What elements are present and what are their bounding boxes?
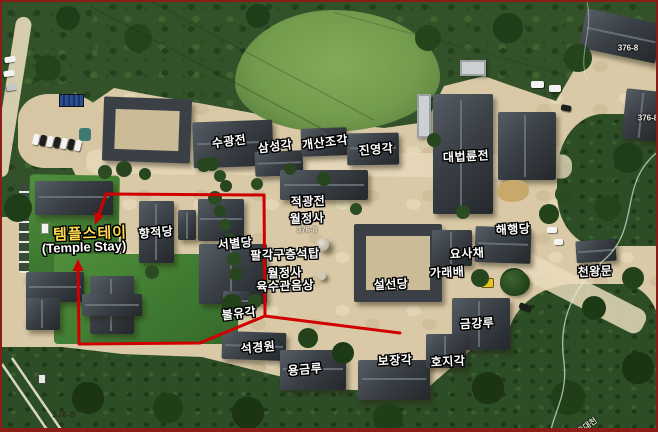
road-lines xyxy=(2,358,64,432)
boundary-line xyxy=(584,2,589,80)
label-statue-line2: 육수관음상 xyxy=(256,279,314,294)
label-seokgyeongwon: 석경원 xyxy=(240,337,276,357)
label-hyangjeokdang: 향적당 xyxy=(138,222,174,242)
label-statue-line1: 월정사 xyxy=(256,266,314,281)
label-hojigak: 호지각 xyxy=(430,352,465,371)
label-statue: 월정사 육수관음상 xyxy=(256,266,315,294)
label-pagoda: 팔각구층석탑 xyxy=(250,244,320,263)
label-jinyeonggak: 진영각 xyxy=(358,139,394,159)
label-bojanggak: 보장각 xyxy=(377,351,412,370)
label-cheonwangmun: 천왕문 xyxy=(577,262,612,281)
label-jeokgwangjeon: 적광전 xyxy=(290,192,325,210)
label-yonggeumnu: 용금루 xyxy=(287,359,323,379)
aerial-map: 수광전 삼성각 개산조각 진영각 대법륜전 적광전 월정사 376-8 향적당 … xyxy=(0,0,658,432)
label-temple-stay-english: (Temple Stay) xyxy=(42,238,127,256)
power-line xyxy=(332,12,562,74)
boundary-line xyxy=(550,150,658,432)
label-seolseondang: 설선당 xyxy=(373,275,408,294)
label-geumgangnu: 금강루 xyxy=(459,314,494,333)
power-line xyxy=(152,2,374,120)
power-line xyxy=(90,6,347,142)
line-overlay xyxy=(2,2,658,432)
label-daebeomnyunjeon: 대법륜전 xyxy=(443,146,490,165)
label-yosachae: 요사채 xyxy=(449,244,484,263)
label-parcel-center: 376-8 xyxy=(297,226,317,235)
label-woljeongsa: 월정사 xyxy=(289,209,324,227)
label-parcel-top-right-2: 376-8 xyxy=(638,114,658,123)
label-haehaengdang: 해행당 xyxy=(495,220,530,239)
label-garaebae: 가래배 xyxy=(429,263,464,282)
label-parcel-bottom-left: 376-8 xyxy=(53,411,76,420)
route-arrowhead xyxy=(73,259,84,271)
label-parcel-top-right-1: 376-8 xyxy=(618,44,638,53)
label-seobyeoldang: 서별당 xyxy=(217,233,253,253)
